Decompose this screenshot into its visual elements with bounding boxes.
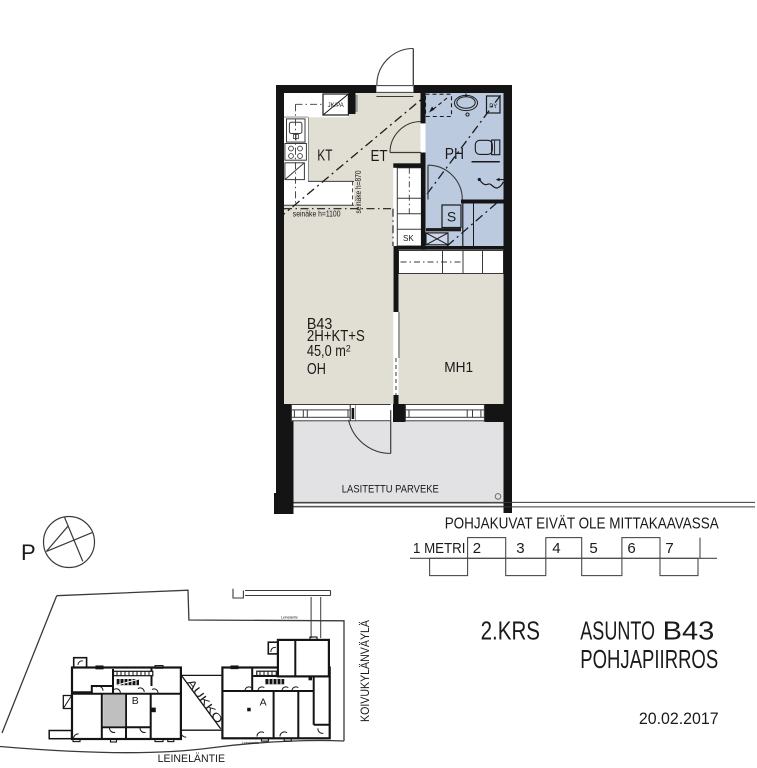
svg-text:LEINELÄNTIE: LEINELÄNTIE	[158, 753, 225, 765]
svg-text:B: B	[132, 695, 139, 707]
svg-text:2: 2	[346, 344, 351, 354]
svg-text:POHJAPIIRROS: POHJAPIIRROS	[580, 644, 718, 674]
svg-text:6: 6	[627, 540, 635, 557]
svg-text:ASUNTO: ASUNTO	[580, 616, 655, 646]
svg-text:JK/PA: JK/PA	[328, 103, 344, 109]
svg-text:POHJAKUVAT EIVÄT OLE MITTAKAAV: POHJAKUVAT EIVÄT OLE MITTAKAAVASSA	[445, 514, 719, 532]
svg-text:2.KRS: 2.KRS	[481, 616, 540, 646]
svg-text:4: 4	[552, 540, 560, 557]
svg-text:20.02.2017: 20.02.2017	[639, 709, 719, 728]
svg-text:seinäke h=1100: seinäke h=1100	[293, 209, 341, 219]
svg-text:Leinelantie: Leinelantie	[242, 741, 259, 745]
svg-text:B43: B43	[663, 616, 715, 646]
svg-text:2: 2	[473, 540, 481, 557]
svg-text:PH: PH	[445, 146, 464, 163]
svg-text:ET: ET	[370, 148, 388, 165]
svg-text:seinäke h=870: seinäke h=870	[353, 170, 363, 213]
svg-text:MH1: MH1	[444, 360, 473, 376]
svg-text:KOIVUKYLÄNVÄYLÄ: KOIVUKYLÄNVÄYLÄ	[360, 620, 372, 722]
svg-text:LASITETTU PARVEKE: LASITETTU PARVEKE	[342, 484, 439, 496]
svg-text:PY: PY	[489, 104, 497, 110]
svg-text:OH: OH	[307, 361, 326, 378]
svg-text:3: 3	[516, 540, 524, 557]
svg-text:1 METRI: 1 METRI	[413, 540, 466, 557]
svg-text:KT: KT	[317, 148, 333, 165]
svg-text:45,0 m: 45,0 m	[307, 343, 346, 360]
svg-text:S: S	[447, 209, 456, 225]
svg-text:SK: SK	[403, 234, 414, 243]
svg-text:7: 7	[665, 540, 673, 557]
svg-text:P: P	[21, 540, 36, 565]
svg-text:Leinelantie: Leinelantie	[281, 616, 298, 620]
svg-text:5: 5	[589, 540, 597, 557]
svg-text:A: A	[260, 697, 267, 709]
